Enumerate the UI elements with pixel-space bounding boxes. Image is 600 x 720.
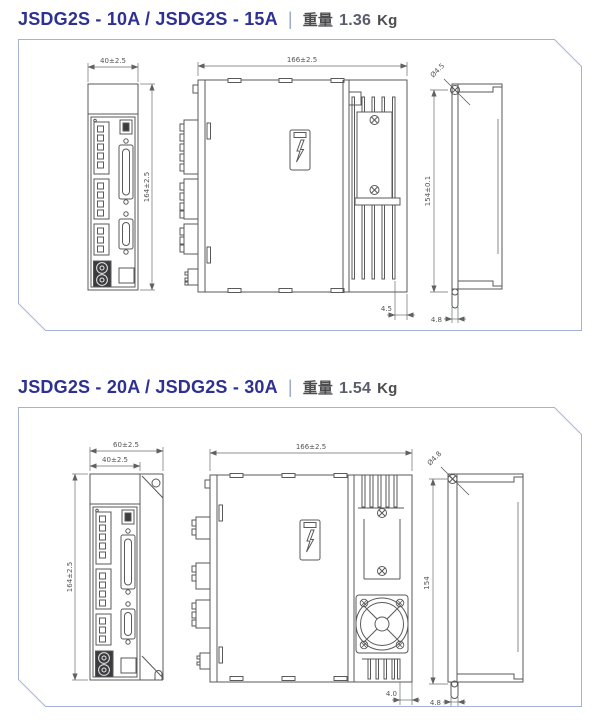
weight-value: 1.54	[339, 380, 371, 398]
section-jsdg2s-20a-30a: JSDG2S - 20A / JSDG2S - 30A | 重量 1.54 Kg	[0, 368, 600, 707]
weight-value: 1.36	[339, 12, 371, 30]
dim-mount-offset: 4.8	[430, 699, 441, 707]
dim-front-width: 40±2.5	[102, 456, 128, 464]
dim-mount-height: 154±0.1	[424, 176, 432, 206]
drawing-panel-2: 60±2.5 40±2.5 164±2.5	[18, 407, 600, 707]
dim-front-width-outer: 60±2.5	[113, 441, 139, 449]
dimensions-page: JSDG2S - 10A / JSDG2S - 15A | 重量 1.36 Kg	[0, 0, 600, 720]
dim-front-height: 164±2.5	[143, 172, 151, 202]
section-title: JSDG2S - 20A / JSDG2S - 30A | 重量 1.54 Kg	[0, 368, 600, 407]
section-title: JSDG2S - 10A / JSDG2S - 15A | 重量 1.36 Kg	[0, 0, 600, 39]
dim-mount-offset: 4.8	[431, 316, 442, 324]
dim-side-width: 166±2.5	[287, 56, 317, 64]
weight-unit: Kg	[377, 12, 397, 29]
weight-label: 重量	[303, 377, 333, 398]
dim-side-width: 166±2.5	[296, 443, 326, 451]
dimension-drawing-1: 40±2.5 164±2.5	[18, 39, 582, 331]
dim-front-width: 40±2.5	[100, 57, 126, 65]
drawing-panel-1: 40±2.5 164±2.5	[18, 39, 600, 331]
model-names: JSDG2S - 20A / JSDG2S - 30A	[18, 377, 278, 398]
section-jsdg2s-10a-15a: JSDG2S - 10A / JSDG2S - 15A | 重量 1.36 Kg	[0, 0, 600, 331]
weight-unit: Kg	[377, 380, 397, 397]
dim-front-height: 164±2.5	[66, 562, 74, 592]
dim-side-gap: 4.0	[386, 690, 397, 698]
dim-side-gap: 4.5	[381, 305, 392, 313]
model-names: JSDG2S - 10A / JSDG2S - 15A	[18, 9, 278, 30]
side-view-drawing: 166±2.5 4.5	[180, 56, 415, 320]
dim-mount-height: 154	[423, 576, 431, 590]
dimension-drawing-2: 60±2.5 40±2.5 164±2.5	[18, 407, 582, 707]
weight-label: 重量	[303, 9, 333, 30]
title-separator: |	[284, 377, 297, 398]
title-separator: |	[284, 9, 297, 30]
side-view-drawing: 166±2.5 4.0	[192, 443, 420, 705]
